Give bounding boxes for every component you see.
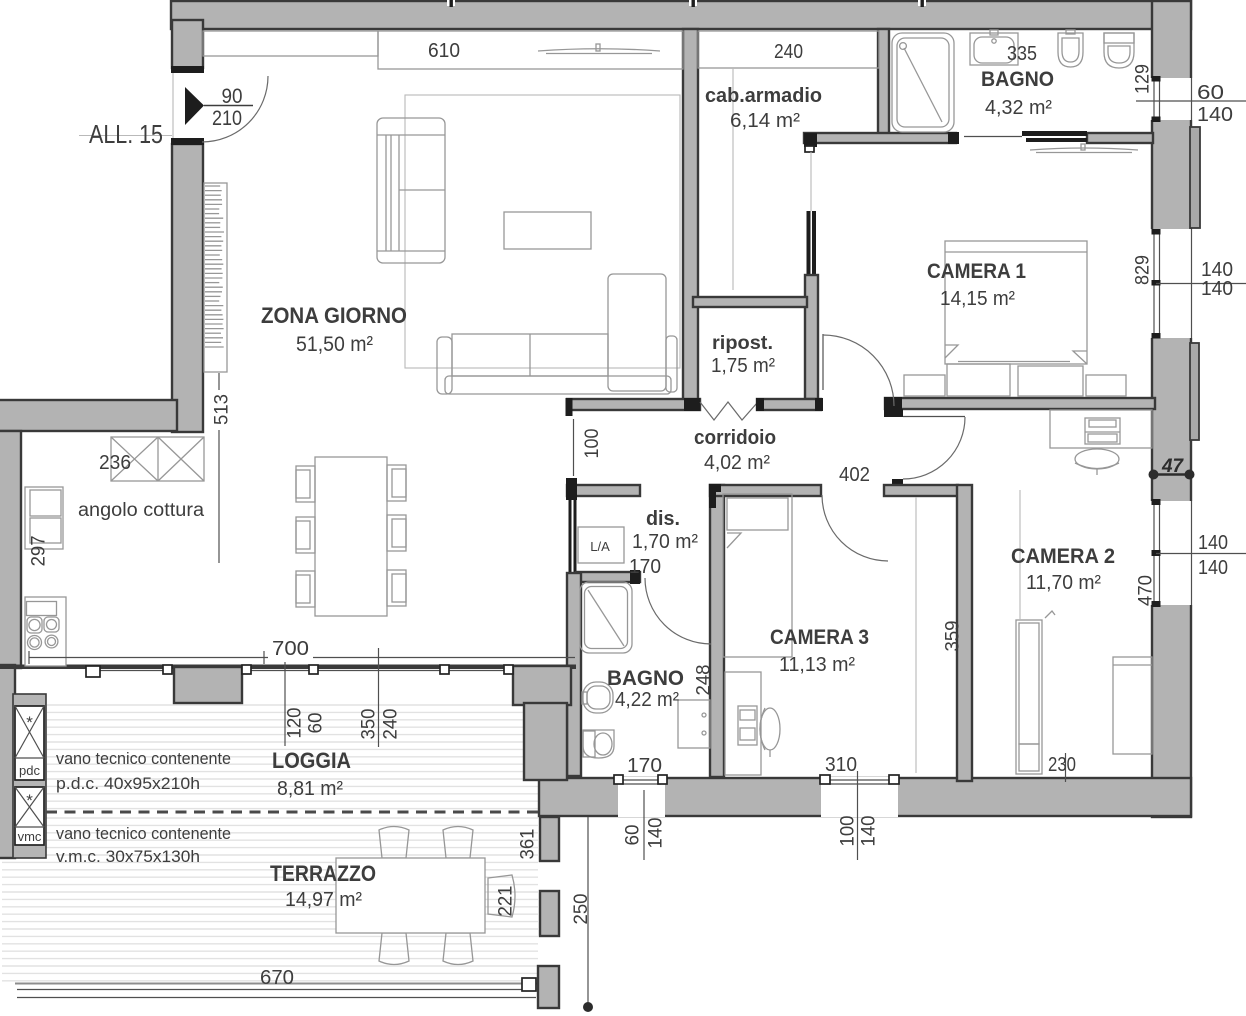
svg-text:BAGNO: BAGNO (607, 667, 684, 690)
svg-text:90: 90 (222, 85, 243, 108)
svg-text:359: 359 (943, 621, 964, 652)
svg-text:361: 361 (518, 829, 539, 860)
svg-text:BAGNO: BAGNO (981, 68, 1054, 91)
svg-text:4,32 m²: 4,32 m² (985, 97, 1052, 119)
svg-text:310: 310 (825, 754, 857, 776)
svg-text:v.m.c. 30x75x130h: v.m.c. 30x75x130h (56, 848, 200, 866)
svg-text:CAMERA 3: CAMERA 3 (770, 626, 869, 649)
svg-text:cab.armadio: cab.armadio (705, 85, 822, 107)
svg-text:pdc: pdc (19, 763, 40, 778)
svg-text:100: 100 (838, 816, 859, 847)
svg-text:dis.: dis. (646, 508, 680, 530)
svg-text:CAMERA 2: CAMERA 2 (1011, 545, 1115, 568)
svg-text:140: 140 (1198, 557, 1228, 579)
svg-text:140: 140 (646, 818, 667, 849)
svg-text:170: 170 (629, 556, 661, 578)
svg-text:51,50 m²: 51,50 m² (296, 333, 373, 356)
svg-text:14,97 m²: 14,97 m² (285, 889, 362, 911)
svg-text:829: 829 (1133, 255, 1154, 285)
svg-text:1,75 m²: 1,75 m² (711, 355, 775, 377)
svg-text:350: 350 (359, 709, 380, 740)
svg-text:210: 210 (212, 107, 242, 130)
svg-text:402: 402 (839, 464, 870, 486)
svg-text:ALL. 15: ALL. 15 (89, 119, 163, 149)
svg-text:6,14 m²: 6,14 m² (730, 110, 800, 132)
svg-text:1,70 m²: 1,70 m² (632, 531, 698, 553)
svg-text:230: 230 (1048, 754, 1076, 776)
svg-text:11,13 m²: 11,13 m² (779, 654, 855, 676)
svg-text:ZONA GIORNO: ZONA GIORNO (261, 303, 407, 328)
svg-text:240: 240 (381, 709, 402, 740)
svg-text:ripost.: ripost. (712, 333, 773, 354)
svg-text:236: 236 (99, 452, 131, 474)
svg-text:248: 248 (694, 665, 715, 696)
svg-text:670: 670 (260, 967, 294, 989)
svg-text:CAMERA 1: CAMERA 1 (927, 260, 1026, 283)
svg-text:vano tecnico contenente: vano tecnico contenente (56, 825, 231, 843)
svg-text:100: 100 (582, 429, 603, 459)
svg-text:120: 120 (285, 708, 306, 739)
svg-text:corridoio: corridoio (694, 427, 776, 449)
svg-text:8,81 m²: 8,81 m² (277, 778, 343, 800)
svg-text:60: 60 (306, 713, 327, 734)
svg-text:TERRAZZO: TERRAZZO (270, 861, 376, 886)
svg-text:*: * (26, 713, 33, 732)
svg-text:170: 170 (627, 755, 662, 777)
svg-text:11,70 m²: 11,70 m² (1026, 572, 1101, 594)
svg-text:513: 513 (212, 394, 233, 425)
svg-text:LOGGIA: LOGGIA (272, 748, 351, 773)
svg-text:vano tecnico contenente: vano tecnico contenente (56, 750, 231, 768)
svg-text:700: 700 (272, 638, 309, 660)
svg-text:60: 60 (1197, 82, 1224, 104)
svg-text:250: 250 (571, 894, 592, 925)
svg-text:240: 240 (774, 41, 803, 63)
svg-text:140: 140 (1201, 278, 1233, 300)
svg-text:4,02 m²: 4,02 m² (704, 452, 770, 474)
svg-text:610: 610 (428, 40, 460, 62)
svg-text:140: 140 (1197, 104, 1233, 126)
svg-text:60: 60 (623, 825, 644, 846)
svg-text:p.d.c. 40x95x210h: p.d.c. 40x95x210h (56, 775, 200, 793)
svg-text:angolo cottura: angolo cottura (78, 500, 204, 521)
svg-text:*: * (26, 791, 33, 810)
svg-text:470: 470 (1136, 575, 1157, 606)
svg-text:vmc: vmc (18, 829, 42, 844)
svg-text:140: 140 (1198, 532, 1228, 554)
svg-text:4,22 m²: 4,22 m² (615, 689, 679, 711)
svg-text:297: 297 (28, 535, 49, 566)
svg-text:47: 47 (1161, 456, 1184, 477)
svg-text:140: 140 (859, 816, 880, 847)
svg-text:L/A: L/A (590, 539, 610, 554)
svg-text:14,15 m²: 14,15 m² (940, 288, 1015, 310)
svg-text:335: 335 (1007, 43, 1037, 65)
svg-text:221: 221 (496, 886, 517, 917)
svg-text:129: 129 (1133, 64, 1154, 94)
